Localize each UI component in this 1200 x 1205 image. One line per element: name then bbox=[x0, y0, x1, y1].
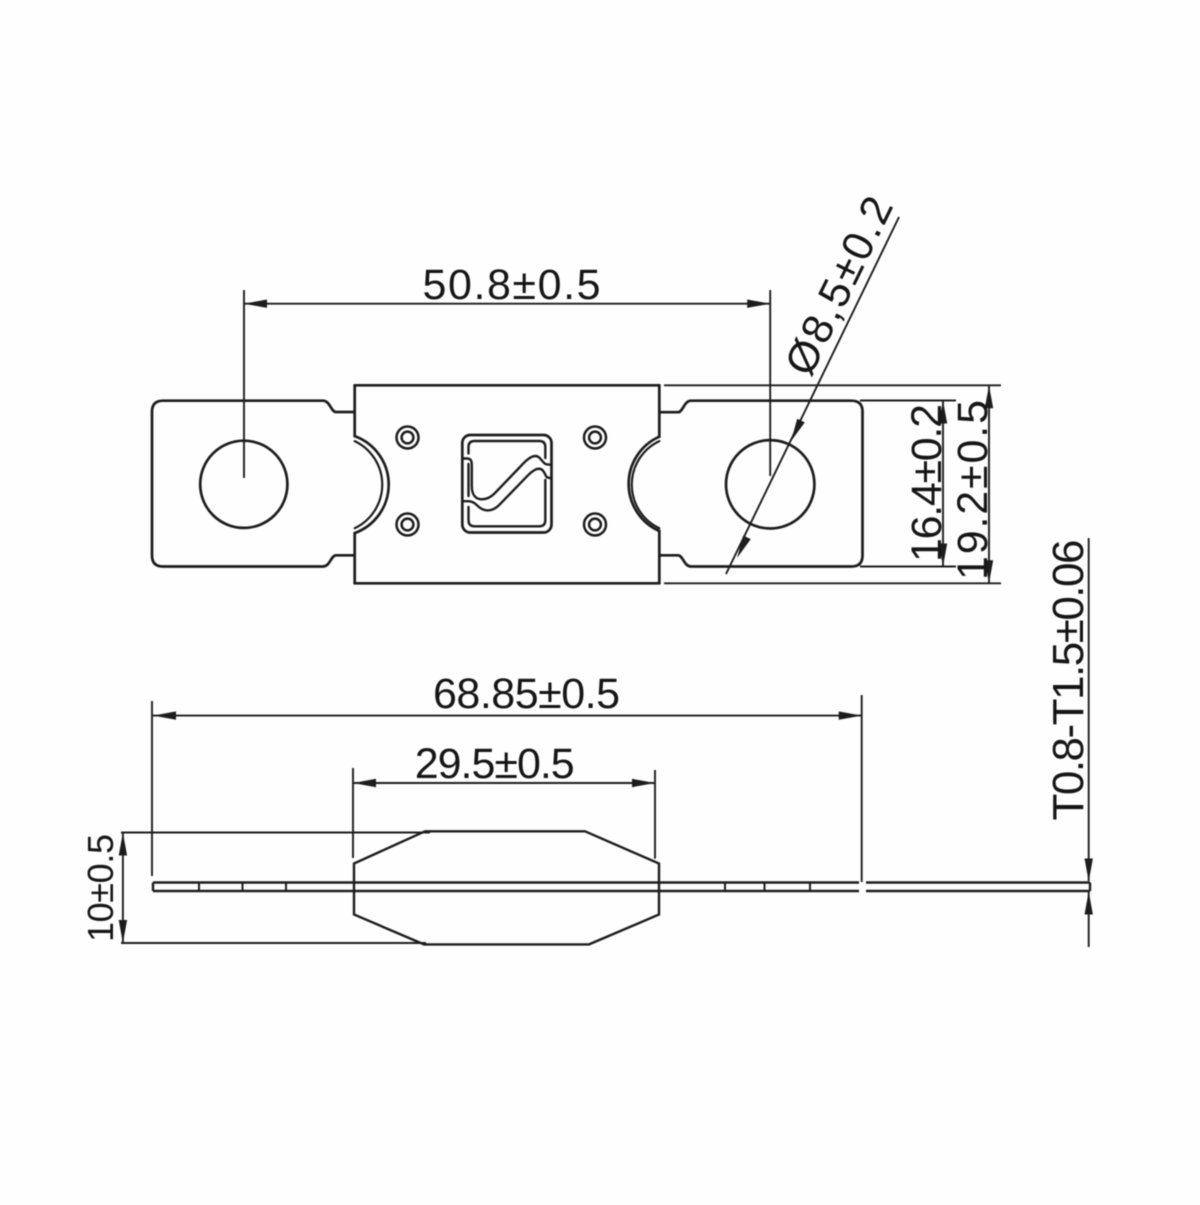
svg-text:16.4±0.2: 16.4±0.2 bbox=[903, 404, 951, 562]
svg-text:10±0.5: 10±0.5 bbox=[80, 834, 121, 942]
svg-text:29.5±0.5: 29.5±0.5 bbox=[415, 740, 575, 788]
svg-text:Ø8,5±0.2: Ø8,5±0.2 bbox=[776, 189, 903, 383]
svg-text:68.85±0.5: 68.85±0.5 bbox=[433, 670, 620, 718]
svg-text:T0.8-T1.5±0.06: T0.8-T1.5±0.06 bbox=[1044, 540, 1093, 821]
svg-text:50.8±0.5: 50.8±0.5 bbox=[423, 261, 601, 309]
